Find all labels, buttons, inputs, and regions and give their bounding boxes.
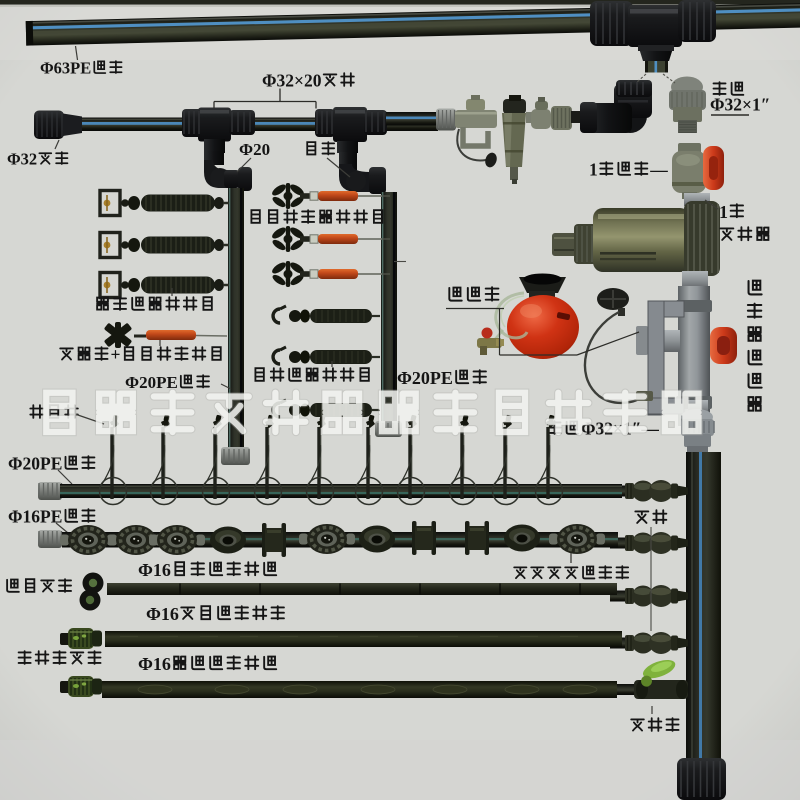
svg-text:—: — bbox=[649, 159, 668, 179]
svg-text:Φ20: Φ20 bbox=[239, 140, 270, 159]
svg-text:Φ32×1″: Φ32×1″ bbox=[710, 94, 770, 114]
svg-text:Φ16: Φ16 bbox=[138, 654, 171, 674]
svg-text:Φ20PE: Φ20PE bbox=[125, 373, 178, 392]
svg-text:+: + bbox=[111, 344, 121, 364]
svg-text:Φ16: Φ16 bbox=[138, 560, 171, 580]
svg-text:1: 1 bbox=[589, 159, 598, 179]
svg-text:Φ20PE: Φ20PE bbox=[8, 453, 62, 473]
svg-text:Φ20PE: Φ20PE bbox=[397, 368, 453, 388]
svg-text:Φ32×20: Φ32×20 bbox=[262, 70, 322, 90]
svg-text:Φ32: Φ32 bbox=[7, 150, 37, 169]
svg-text:1: 1 bbox=[719, 202, 728, 222]
svg-text:Φ63PE: Φ63PE bbox=[40, 59, 91, 78]
svg-text:Φ16PE: Φ16PE bbox=[8, 506, 62, 526]
svg-text:Φ16: Φ16 bbox=[146, 604, 179, 624]
